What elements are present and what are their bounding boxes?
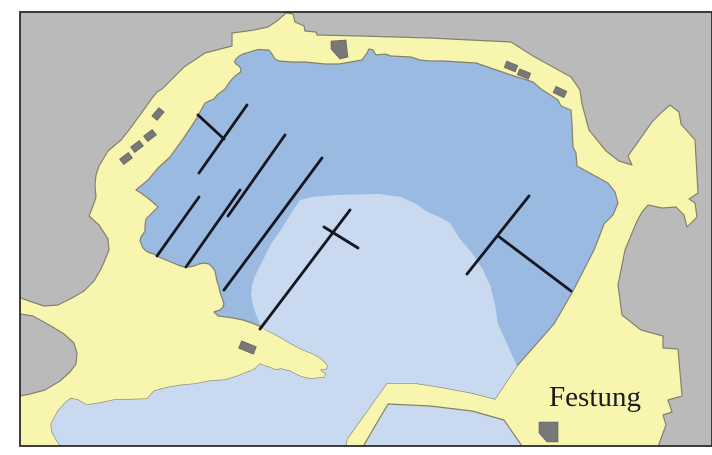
svg-text:Festung: Festung [549,381,641,413]
